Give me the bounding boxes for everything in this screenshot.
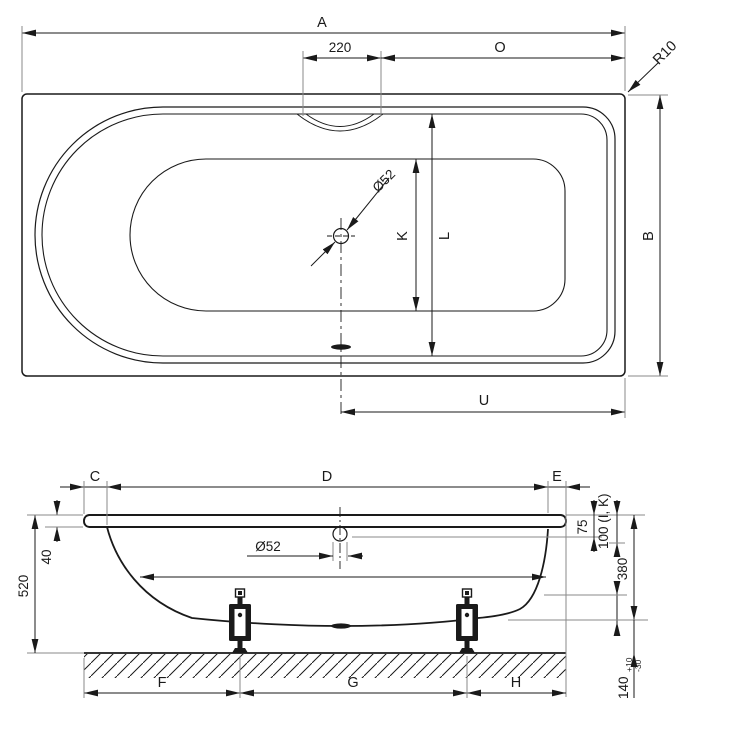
overflow-slot bbox=[331, 344, 351, 349]
side-view: Ø52 C D E 40 520 bbox=[16, 469, 648, 699]
dim-label-U: U bbox=[479, 393, 489, 409]
dim-label-B: B bbox=[641, 231, 657, 241]
leader-line-R10 bbox=[628, 62, 659, 92]
rim-inner-line bbox=[42, 114, 607, 356]
dim-label-75: 75 bbox=[575, 519, 590, 534]
dim-label-R10: R10 bbox=[650, 38, 680, 68]
waste-outlet bbox=[331, 623, 351, 628]
bathtub-technical-drawing: A 220 O R10 B U K L Ø52 bbox=[0, 0, 750, 743]
dim-label-100: 100 (I, K) bbox=[596, 493, 611, 549]
tub-outer-edge bbox=[22, 94, 625, 376]
dim-label-H: H bbox=[511, 675, 521, 691]
dim-label-drain-section: Ø52 bbox=[255, 539, 281, 554]
adjustable-foot-left bbox=[229, 589, 251, 653]
leader-drain-lower bbox=[311, 242, 335, 266]
dim-label-520: 520 bbox=[16, 575, 31, 598]
dim-label-O: O bbox=[494, 40, 505, 56]
headrest-recess-inner-arc bbox=[306, 114, 374, 127]
dim-label-G: G bbox=[347, 675, 358, 691]
dim-label-40: 40 bbox=[39, 549, 54, 564]
floor-hatching bbox=[84, 654, 566, 678]
dim-label-L: L bbox=[437, 232, 453, 240]
dim-label-F: F bbox=[158, 675, 167, 691]
dim-label-A: A bbox=[317, 15, 327, 31]
rim-section bbox=[84, 515, 566, 527]
basin-floor-line bbox=[130, 159, 565, 311]
dim-label-E: E bbox=[552, 469, 562, 485]
dim-label-D: D bbox=[322, 469, 332, 485]
rim-outer-line bbox=[35, 107, 615, 363]
dim-label-380: 380 bbox=[615, 558, 630, 581]
dim-label-140: 140 bbox=[616, 676, 631, 699]
adjustable-foot-right bbox=[456, 589, 478, 653]
dim-label-recess-width: 220 bbox=[329, 40, 352, 55]
dim-label-K: K bbox=[395, 231, 411, 241]
dim-label-140-tol-minus: -30 bbox=[633, 659, 643, 672]
dim-label-drain-top: Ø52 bbox=[369, 166, 398, 195]
dim-label-C: C bbox=[90, 469, 100, 485]
drawing-page: A 220 O R10 B U K L Ø52 bbox=[0, 0, 750, 743]
top-view: A 220 O R10 B U K L Ø52 bbox=[22, 15, 680, 418]
